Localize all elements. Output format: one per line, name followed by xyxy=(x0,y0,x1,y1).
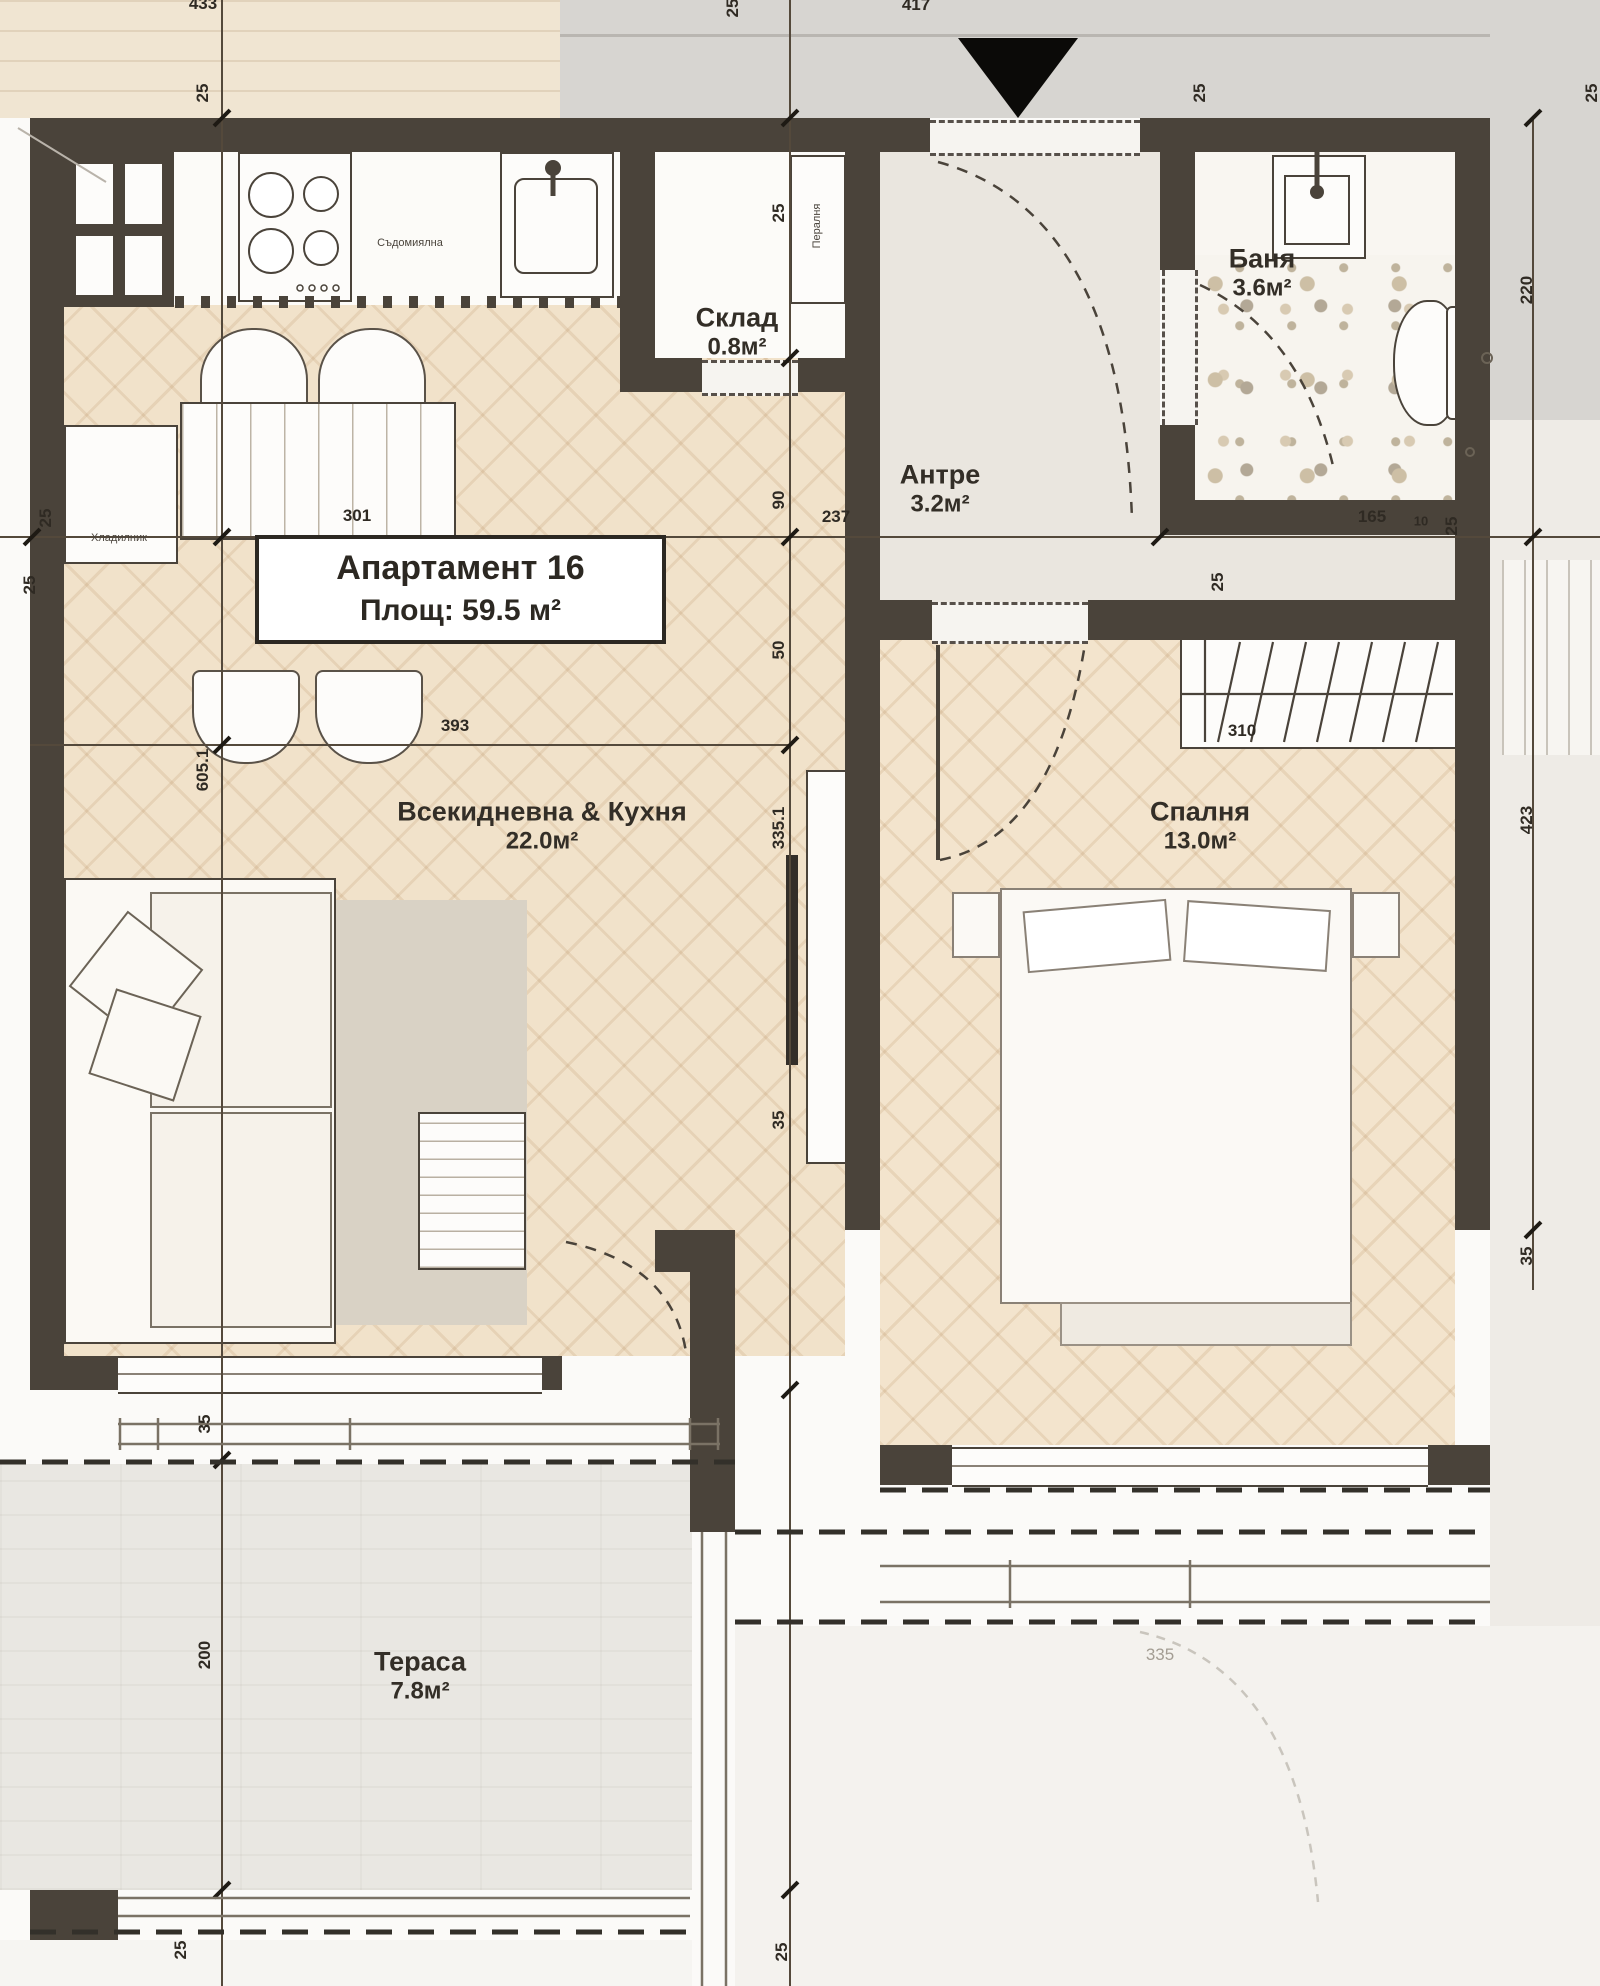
dimension-label: 25 xyxy=(769,204,789,223)
room-name: Склад xyxy=(696,303,779,334)
dimension-label: 90 xyxy=(769,491,789,510)
dimension-label: 165 xyxy=(1358,507,1386,527)
dimension-label: 200 xyxy=(195,1641,215,1669)
room-label-bedroom: Спалня13.0м² xyxy=(1150,796,1250,855)
room-label-living: Всекидневна & Кухня22.0м² xyxy=(397,796,686,855)
dimension-label: 35 xyxy=(195,1415,215,1434)
dimension-label: 335 xyxy=(1146,1645,1174,1665)
room-label-storage: Склад0.8м² xyxy=(696,303,779,362)
dimension-label: 25 xyxy=(1208,573,1228,592)
fixture-label-washer: Пералня xyxy=(811,204,823,249)
dimension-label: 10 xyxy=(1414,514,1428,529)
dimension-label: 25 xyxy=(772,1943,792,1962)
floor-plan: Апартамент 16 Площ: 59.5 м² Всекидневна … xyxy=(0,0,1600,1986)
dimension-label: 310 xyxy=(1228,721,1256,741)
dimension-label: 25 xyxy=(1190,84,1210,103)
room-area: 13.0м² xyxy=(1150,827,1250,855)
room-label-terrace: Тераса7.8м² xyxy=(374,1646,466,1705)
room-area: 0.8м² xyxy=(696,334,779,362)
apartment-title: Апартамент 16 xyxy=(273,549,648,588)
dimension-label: 35 xyxy=(1517,1247,1537,1266)
room-name: Антре xyxy=(900,460,981,491)
room-area: 22.0м² xyxy=(397,827,686,855)
dimension-label: 417 xyxy=(902,0,930,15)
room-label-bath: Баня3.6м² xyxy=(1229,244,1296,303)
dimension-label: 220 xyxy=(1517,276,1537,304)
room-area: 3.6м² xyxy=(1229,275,1296,303)
fixture-label-fridge: Хладилник xyxy=(91,532,147,544)
dimension-label: 25 xyxy=(20,576,40,595)
dimension-label: 237 xyxy=(822,507,850,527)
room-name: Спалня xyxy=(1150,796,1250,827)
dimension-label: 25 xyxy=(193,84,213,103)
fixture-label-dishwasher: Съдомиялна xyxy=(377,237,443,249)
dimension-label: 433 xyxy=(189,0,217,14)
room-label-hall: Антре3.2м² xyxy=(900,460,981,519)
dimension-label: 25 xyxy=(171,1941,191,1960)
room-name: Всекидневна & Кухня xyxy=(397,796,686,827)
dimension-label: 35 xyxy=(769,1111,789,1130)
dimension-label: 25 xyxy=(1442,517,1462,536)
room-name: Тераса xyxy=(374,1646,466,1677)
apartment-title-box: Апартамент 16 Площ: 59.5 м² xyxy=(255,535,666,644)
labels-layer: Всекидневна & Кухня22.0м²Спалня13.0м²Ант… xyxy=(0,0,1600,1986)
room-area: 7.8м² xyxy=(374,1677,466,1705)
dimension-label: 335.1 xyxy=(769,807,789,850)
dimension-label: 301 xyxy=(343,506,371,526)
dimension-label: 605.1 xyxy=(193,749,213,792)
dimension-label: 25 xyxy=(36,509,56,528)
dimension-label: 50 xyxy=(769,641,789,660)
dimension-label: 423 xyxy=(1517,806,1537,834)
dimension-label: 393 xyxy=(441,716,469,736)
dimension-label: 25 xyxy=(723,0,743,17)
room-area: 3.2м² xyxy=(900,491,981,519)
dimension-label: 25 xyxy=(1582,84,1600,103)
room-name: Баня xyxy=(1229,244,1296,275)
apartment-area: Площ: 59.5 м² xyxy=(273,594,648,628)
